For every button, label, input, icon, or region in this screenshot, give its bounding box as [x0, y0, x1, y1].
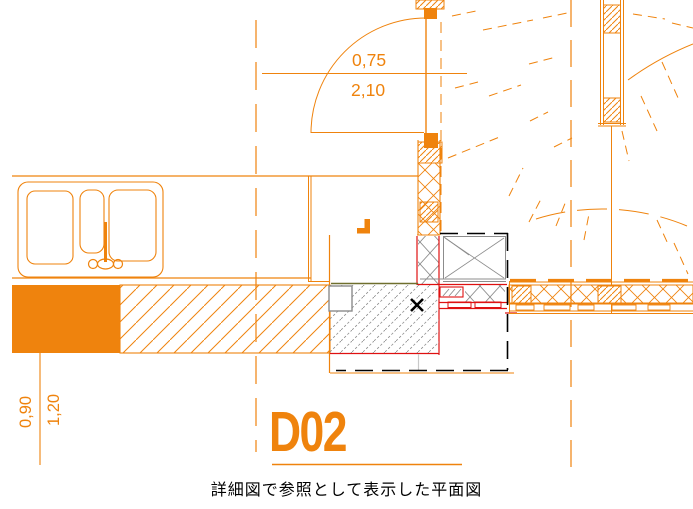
- wall-timber-block: [512, 286, 531, 303]
- door-jamb-bottom: [418, 142, 442, 163]
- reference-axes: [256, 0, 571, 467]
- detail-red-region: [330, 236, 517, 355]
- cad-plan-drawing: 0,75 2,10: [0, 0, 693, 509]
- sink-basin-right: [109, 190, 156, 261]
- dim-door-height: 2,10: [351, 80, 385, 100]
- door-jamb-top: [416, 0, 444, 9]
- dim-left-inner: 0,90: [17, 396, 35, 428]
- figure-caption: 詳細図で参照として表示した平面図: [0, 476, 693, 500]
- sink-basin-middle: [80, 190, 104, 253]
- door-swing-arc: [311, 18, 426, 133]
- solid-orange-block: [12, 285, 120, 353]
- kitchen-sink: [18, 182, 163, 277]
- corner-marker-glyph: [357, 219, 370, 234]
- grey-square-element: [329, 286, 352, 311]
- floor-plan-canvas: 0,75 2,10: [0, 0, 693, 509]
- hatched-band: [120, 285, 330, 353]
- door-label: D02: [269, 400, 346, 464]
- wall-timber-block: [420, 202, 438, 222]
- door-dimension: 0,75 2,10: [262, 50, 467, 100]
- sink-basin-left: [27, 191, 73, 264]
- door-label-group: D02: [269, 400, 462, 465]
- door-stop-top: [424, 8, 437, 19]
- window-mullion: [598, 0, 626, 313]
- dim-door-width: 0,75: [352, 50, 386, 70]
- wall-timber-block: [598, 286, 621, 303]
- fan-arc-outer: [628, 44, 693, 80]
- sink-faucet: [89, 222, 123, 269]
- dim-left-outer: 1,20: [45, 394, 63, 426]
